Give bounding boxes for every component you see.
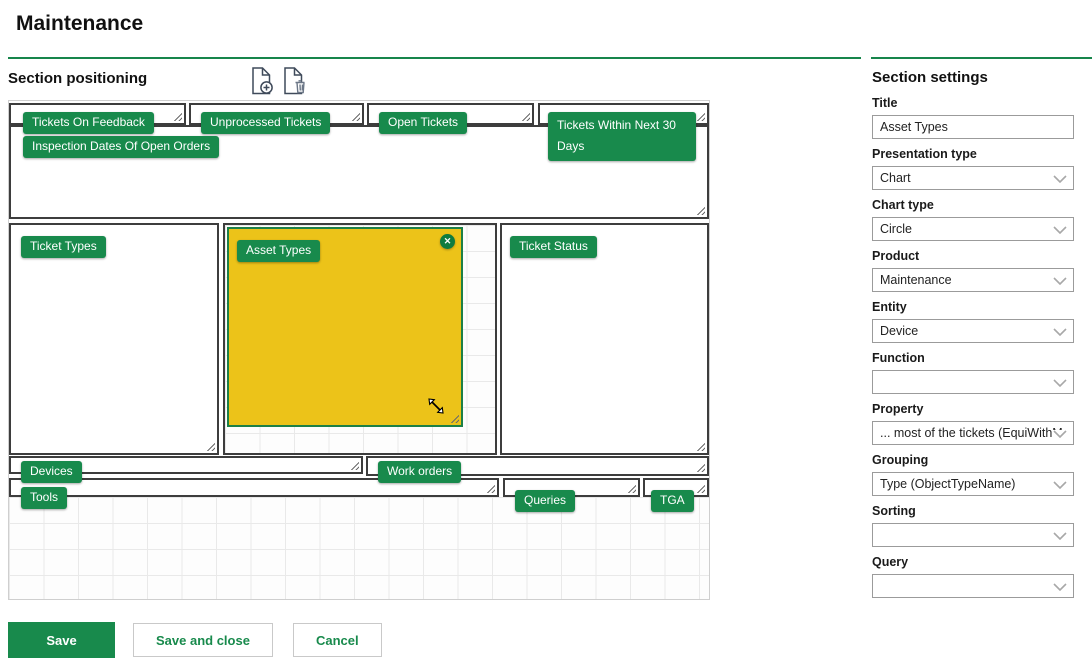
- section-tile[interactable]: TGA: [643, 478, 709, 497]
- section-positioning-canvas: Tickets On Feedback Unprocessed Tickets …: [8, 100, 710, 600]
- chevron-down-icon: [1053, 583, 1067, 591]
- page-title: Maintenance: [16, 12, 143, 36]
- chart-type-label: Chart type: [872, 198, 1074, 212]
- query-label: Query: [872, 555, 1074, 569]
- section-chip[interactable]: Asset Types: [237, 240, 320, 262]
- chart-type-select[interactable]: Circle: [872, 217, 1074, 241]
- resize-handle-icon[interactable]: [486, 484, 495, 493]
- footer-actions: Save Save and close Cancel: [8, 622, 382, 658]
- selected-section-tile[interactable]: Asset Types ✕: [227, 227, 463, 427]
- resize-handle-icon[interactable]: [696, 206, 705, 215]
- resize-handle-icon[interactable]: [696, 463, 705, 472]
- product-label: Product: [872, 249, 1074, 263]
- section-chip[interactable]: Devices: [21, 461, 82, 483]
- section-chip[interactable]: Work orders: [378, 461, 461, 483]
- save-and-close-button[interactable]: Save and close: [133, 623, 273, 657]
- grouping-select[interactable]: Type (ObjectTypeName): [872, 472, 1074, 496]
- section-chip[interactable]: Tickets On Feedback: [23, 112, 154, 134]
- property-label: Property: [872, 402, 1074, 416]
- divider: [871, 57, 1092, 59]
- property-select[interactable]: ... most of the tickets (EquiWithM: [872, 421, 1074, 445]
- section-chip[interactable]: Inspection Dates Of Open Orders: [23, 136, 219, 158]
- property-value: ... most of the tickets (EquiWithM: [880, 426, 1063, 440]
- resize-handle-icon[interactable]: [627, 484, 636, 493]
- function-label: Function: [872, 351, 1074, 365]
- grouping-value: Type (ObjectTypeName): [880, 477, 1015, 491]
- section-chip[interactable]: Tools: [21, 487, 67, 509]
- chevron-down-icon: [1053, 532, 1067, 540]
- sorting-label: Sorting: [872, 504, 1074, 518]
- section-chip[interactable]: Ticket Types: [21, 236, 106, 258]
- resize-handle-icon[interactable]: [696, 112, 705, 121]
- section-tile[interactable]: Unprocessed Tickets: [189, 103, 364, 125]
- presentation-type-select[interactable]: Chart: [872, 166, 1074, 190]
- chevron-down-icon: [1053, 481, 1067, 489]
- section-chip[interactable]: Tickets Within Next 30 Days: [548, 112, 696, 161]
- save-button[interactable]: Save: [8, 622, 115, 658]
- resize-handle-icon[interactable]: [450, 414, 459, 423]
- product-value: Maintenance: [880, 273, 952, 287]
- section-settings-panel: Title Presentation type Chart Chart type…: [872, 96, 1074, 606]
- chevron-down-icon: [1053, 328, 1067, 336]
- close-icon[interactable]: ✕: [440, 234, 455, 249]
- presentation-type-value: Chart: [880, 171, 911, 185]
- resize-handle-icon[interactable]: [696, 442, 705, 451]
- section-settings-heading: Section settings: [872, 69, 988, 86]
- divider: [8, 57, 861, 59]
- section-chip[interactable]: Ticket Status: [510, 236, 597, 258]
- resize-handle-icon[interactable]: [521, 112, 530, 121]
- section-tile[interactable]: Tickets Within Next 30 Days: [538, 103, 709, 125]
- entity-value: Device: [880, 324, 918, 338]
- section-tile[interactable]: Ticket Status: [500, 223, 709, 455]
- section-chip[interactable]: TGA: [651, 490, 694, 512]
- section-tile[interactable]: Tickets On Feedback: [9, 103, 186, 125]
- resize-handle-icon[interactable]: [351, 112, 360, 121]
- chevron-down-icon: [1053, 430, 1067, 438]
- product-select[interactable]: Maintenance: [872, 268, 1074, 292]
- section-chip[interactable]: Open Tickets: [379, 112, 467, 134]
- chevron-down-icon: [1053, 175, 1067, 183]
- presentation-type-label: Presentation type: [872, 147, 1074, 161]
- chevron-down-icon: [1053, 379, 1067, 387]
- chevron-down-icon: [1053, 226, 1067, 234]
- chart-type-value: Circle: [880, 222, 912, 236]
- drop-grid-cell[interactable]: Asset Types ✕: [223, 223, 497, 455]
- section-chip[interactable]: Queries: [515, 490, 575, 512]
- grouping-label: Grouping: [872, 453, 1074, 467]
- title-input[interactable]: [872, 115, 1074, 139]
- resize-handle-icon[interactable]: [350, 461, 359, 470]
- cancel-button[interactable]: Cancel: [293, 623, 382, 657]
- section-editor-page: Maintenance Section positioning Tickets …: [0, 0, 1092, 671]
- section-tile[interactable]: Open Tickets: [367, 103, 534, 125]
- resize-cursor-icon: [425, 395, 447, 417]
- add-section-icon[interactable]: [249, 66, 275, 96]
- section-tile[interactable]: Queries: [503, 478, 640, 497]
- entity-label: Entity: [872, 300, 1074, 314]
- function-select[interactable]: [872, 370, 1074, 394]
- section-tile[interactable]: Devices: [9, 456, 363, 474]
- empty-grid-area[interactable]: [9, 497, 709, 599]
- section-chip[interactable]: Unprocessed Tickets: [201, 112, 330, 134]
- sorting-select[interactable]: [872, 523, 1074, 547]
- section-tile[interactable]: Ticket Types: [9, 223, 219, 455]
- section-tile[interactable]: Work orders: [366, 456, 709, 476]
- resize-handle-icon[interactable]: [696, 484, 705, 493]
- query-select[interactable]: [872, 574, 1074, 598]
- entity-select[interactable]: Device: [872, 319, 1074, 343]
- resize-handle-icon[interactable]: [206, 442, 215, 451]
- section-positioning-heading: Section positioning: [8, 70, 147, 87]
- delete-section-icon[interactable]: [282, 66, 308, 96]
- chevron-down-icon: [1053, 277, 1067, 285]
- title-label: Title: [872, 96, 1074, 110]
- resize-handle-icon[interactable]: [173, 112, 182, 121]
